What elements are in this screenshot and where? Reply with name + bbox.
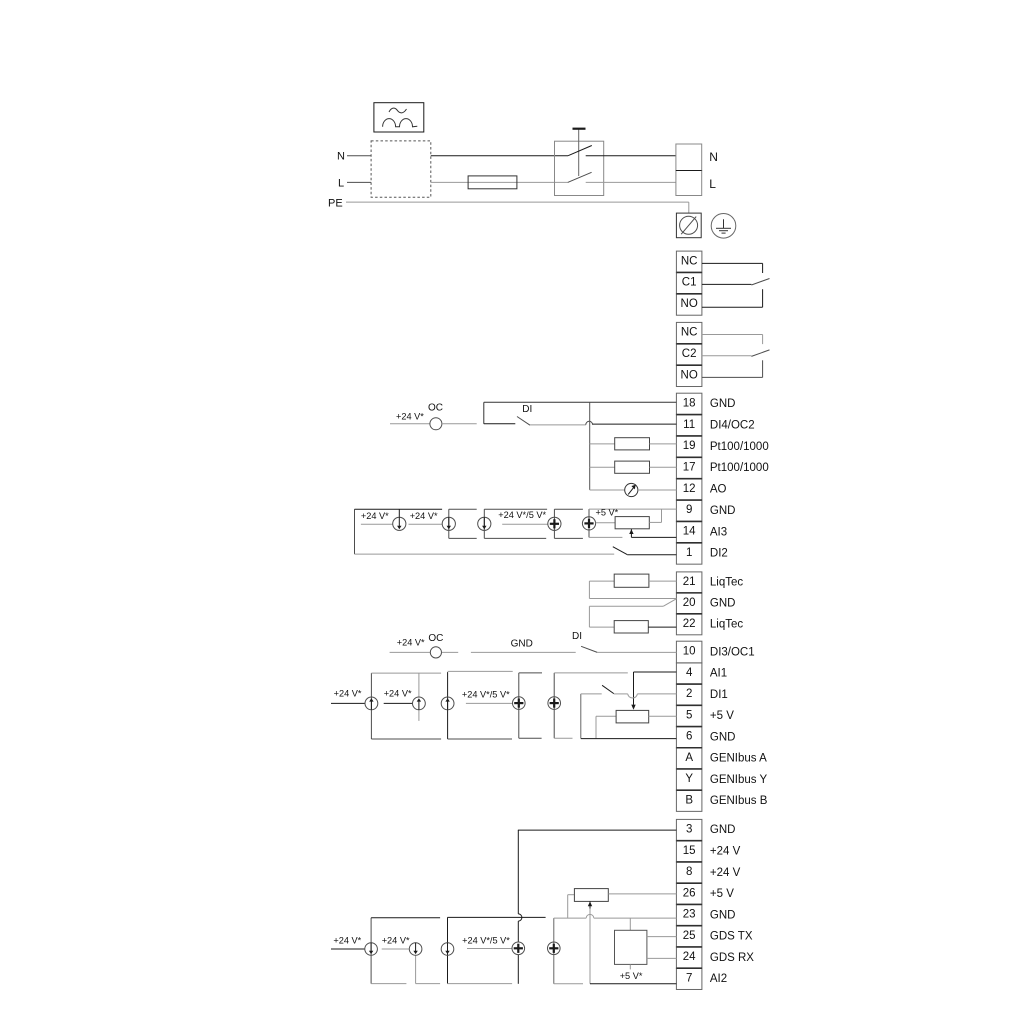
svg-text:GENIbus Y: GENIbus Y	[710, 774, 768, 786]
svg-text:7: 7	[686, 972, 692, 984]
svg-text:24: 24	[683, 951, 696, 963]
svg-text:AI3: AI3	[710, 526, 727, 538]
svg-text:NO: NO	[681, 369, 698, 381]
svg-text:NC: NC	[681, 255, 698, 267]
svg-text:17: 17	[683, 461, 696, 473]
svg-text:N: N	[709, 150, 718, 164]
svg-text:+5 V: +5 V	[710, 888, 734, 900]
svg-text:20: 20	[683, 597, 696, 609]
svg-text:+24 V*: +24 V*	[410, 511, 438, 521]
svg-text:3: 3	[686, 824, 692, 836]
svg-text:21: 21	[683, 576, 696, 588]
svg-text:DI: DI	[572, 631, 582, 642]
svg-text:DI4/OC2: DI4/OC2	[710, 419, 755, 431]
svg-text:GDS TX: GDS TX	[710, 931, 753, 943]
svg-text:8: 8	[686, 866, 692, 878]
svg-text:PE: PE	[328, 197, 343, 209]
svg-text:L: L	[338, 178, 344, 190]
svg-text:+5 V*: +5 V*	[596, 507, 619, 517]
svg-text:OC: OC	[428, 402, 443, 413]
svg-text:AO: AO	[710, 484, 727, 496]
svg-text:L: L	[709, 177, 716, 191]
svg-text:GND: GND	[710, 398, 736, 410]
svg-text:A: A	[685, 752, 693, 764]
svg-text:+5 V*: +5 V*	[620, 971, 643, 981]
svg-text:NO: NO	[681, 298, 698, 310]
svg-text:15: 15	[683, 845, 696, 857]
svg-text:+5 V: +5 V	[710, 710, 734, 722]
svg-text:N: N	[337, 151, 345, 163]
svg-text:AI2: AI2	[710, 973, 727, 985]
svg-text:GDS RX: GDS RX	[710, 952, 754, 964]
svg-text:+24 V*: +24 V*	[334, 688, 362, 698]
svg-text:Pt100/1000: Pt100/1000	[710, 462, 769, 474]
svg-text:+24 V: +24 V	[710, 867, 741, 879]
svg-text:+24 V*/5 V*: +24 V*/5 V*	[462, 689, 510, 699]
svg-text:GND: GND	[710, 909, 736, 921]
svg-text:Y: Y	[685, 773, 693, 785]
svg-text:GND: GND	[710, 731, 736, 743]
svg-text:AI1: AI1	[710, 668, 727, 680]
svg-text:25: 25	[683, 930, 696, 942]
svg-text:OC: OC	[428, 633, 443, 644]
svg-text:DI1: DI1	[710, 689, 728, 701]
svg-text:GENIbus B: GENIbus B	[710, 795, 768, 807]
svg-text:11: 11	[683, 419, 695, 431]
svg-text:+24 V*: +24 V*	[396, 412, 424, 422]
svg-text:B: B	[685, 794, 693, 806]
svg-text:DI2: DI2	[710, 548, 728, 560]
svg-text:+24 V*: +24 V*	[361, 511, 389, 521]
svg-text:23: 23	[683, 909, 696, 921]
svg-text:LiqTec: LiqTec	[710, 577, 743, 589]
svg-text:C1: C1	[682, 277, 697, 289]
svg-text:1: 1	[686, 547, 692, 559]
svg-text:+24 V*: +24 V*	[397, 637, 425, 647]
svg-text:6: 6	[686, 731, 692, 743]
svg-text:+24 V: +24 V	[710, 845, 741, 857]
svg-text:LiqTec: LiqTec	[710, 619, 743, 631]
svg-text:Pt100/1000: Pt100/1000	[710, 441, 769, 453]
svg-text:9: 9	[686, 504, 692, 516]
svg-text:26: 26	[683, 887, 696, 899]
svg-text:+24 V*: +24 V*	[384, 688, 412, 698]
svg-text:GND: GND	[511, 638, 533, 649]
svg-text:GND: GND	[710, 824, 736, 836]
svg-text:DI3/OC1: DI3/OC1	[710, 646, 755, 658]
svg-text:2: 2	[686, 688, 692, 700]
svg-text:+24 V*/5 V*: +24 V*/5 V*	[462, 936, 510, 946]
svg-text:NC: NC	[681, 327, 698, 339]
svg-text:GND: GND	[710, 598, 736, 610]
svg-text:+24 V*/5 V*: +24 V*/5 V*	[498, 510, 546, 520]
svg-text:14: 14	[683, 526, 696, 538]
svg-text:GENIbus A: GENIbus A	[710, 753, 767, 765]
svg-text:19: 19	[683, 440, 696, 452]
svg-text:DI: DI	[522, 404, 532, 415]
svg-text:GND: GND	[710, 505, 736, 517]
svg-text:18: 18	[683, 397, 696, 409]
svg-text:+24 V*: +24 V*	[382, 935, 410, 945]
svg-text:22: 22	[683, 618, 696, 630]
svg-text:C2: C2	[682, 348, 697, 360]
svg-text:4: 4	[686, 667, 693, 679]
svg-text:5: 5	[686, 709, 692, 721]
svg-text:10: 10	[683, 646, 696, 658]
svg-text:+24 V*: +24 V*	[333, 935, 361, 945]
svg-text:12: 12	[683, 483, 696, 495]
